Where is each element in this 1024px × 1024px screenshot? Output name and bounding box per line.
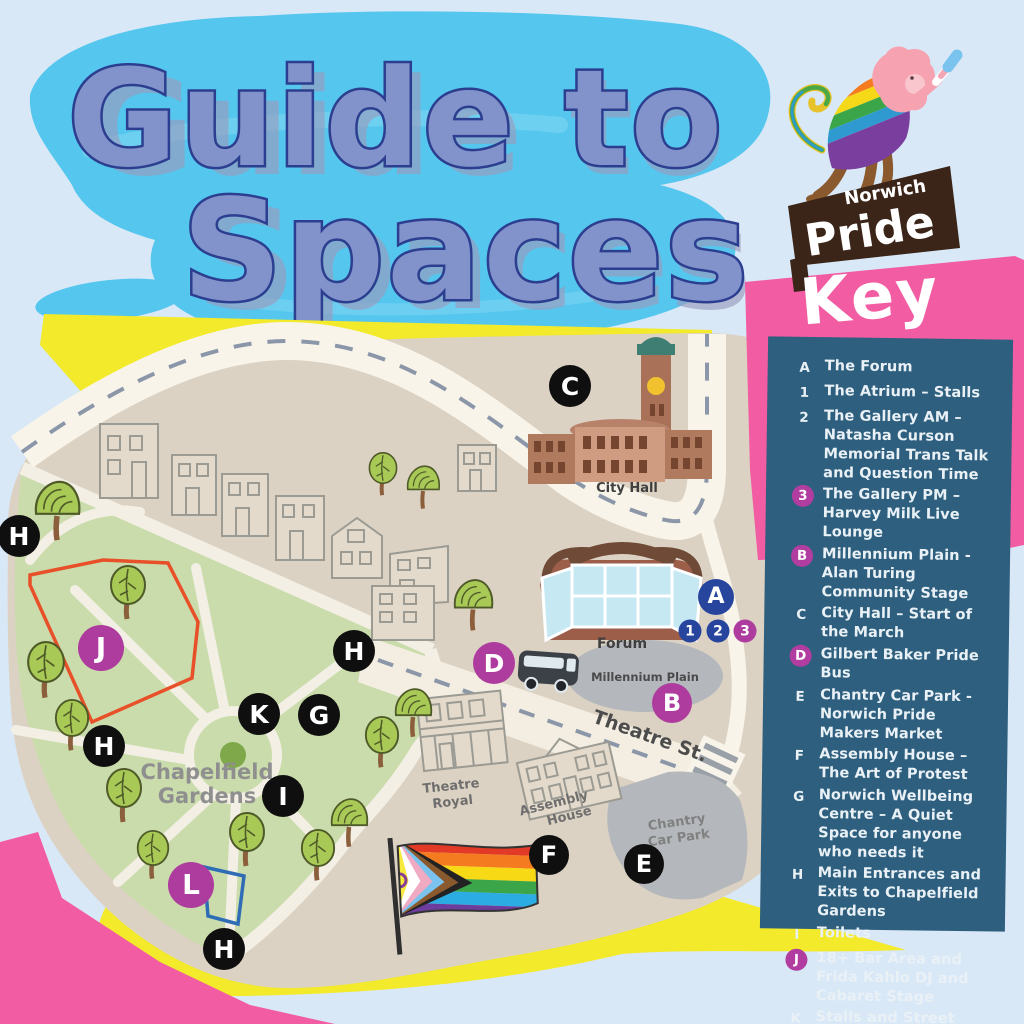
key-item-badge: J	[785, 949, 807, 971]
key-item: 2 The Gallery AM – Natasha Curson Memori…	[792, 407, 1002, 485]
key-item-badge: I	[786, 924, 808, 946]
key-item: 1 The Atrium – Stalls	[793, 382, 1002, 407]
key-item: K Stalls and Street Food	[784, 1008, 994, 1024]
key-item: C City Hall – Start of the March	[790, 604, 1000, 645]
key-item-text: Millennium Plain - Alan Turing Community…	[821, 545, 1000, 604]
label-city-hall: City Hall	[596, 481, 658, 496]
key-item-badge: 2	[793, 407, 815, 429]
title-line2: Spaces	[182, 170, 751, 333]
key-item: J 18+ Bar Area and Frida Kahlo DJ and Ca…	[785, 949, 995, 1008]
key-item: H Main Entrances and Exits to Chapelfiel…	[786, 864, 996, 923]
norwich-pride-logo: Norwich Pride	[770, 29, 960, 292]
key-item-badge: B	[791, 545, 813, 567]
key-item-text: Toilets	[817, 924, 871, 944]
key-item-text: Gilbert Baker Pride Bus	[820, 645, 999, 685]
key-item-text: Main Entrances and Exits to Chapelfield …	[817, 864, 996, 923]
key-item-badge: 1	[793, 382, 815, 404]
key-item-badge: E	[789, 685, 811, 707]
forum-building	[540, 548, 703, 640]
key-item-text: Norwich Wellbeing Centre – A Quiet Space…	[818, 786, 997, 864]
key-item-text: The Gallery PM – Harvey Milk Live Lounge	[822, 485, 1001, 544]
key-item-badge: F	[788, 745, 810, 767]
key-list: A The Forum 1 The Atrium – Stalls 2 The …	[784, 357, 1003, 1024]
key-item-badge: K	[784, 1008, 806, 1024]
key-item: A The Forum	[794, 357, 1003, 382]
key-item: I Toilets	[786, 924, 995, 949]
key-item-text: City Hall – Start of the March	[821, 605, 1000, 645]
key-item: E Chantry Car Park - Norwich Pride Maker…	[788, 685, 998, 744]
key-item-text: The Forum	[825, 357, 913, 377]
key-item: G Norwich Wellbeing Centre – A Quiet Spa…	[787, 786, 997, 864]
guide-to-spaces-poster: Guide to Guide to Spaces Spaces	[0, 0, 1024, 1024]
key-item-badge: 3	[792, 485, 814, 507]
key-item-text: 18+ Bar Area and Frida Kahlo DJ and Caba…	[816, 949, 995, 1008]
key-item-text: The Gallery AM – Natasha Curson Memorial…	[823, 407, 1002, 485]
label-forum: Forum	[597, 636, 647, 652]
key-item-badge: C	[790, 604, 812, 626]
label-chapelfield-1: Chapelfield	[140, 760, 273, 784]
key-item-badge: G	[788, 786, 810, 808]
key-item: D Gilbert Baker Pride Bus	[789, 645, 999, 686]
key-item: 3 The Gallery PM – Harvey Milk Live Loun…	[791, 485, 1001, 544]
key-item-text: The Atrium – Stalls	[824, 382, 980, 403]
key-item-badge: H	[786, 864, 808, 886]
key-item: B Millennium Plain - Alan Turing Communi…	[790, 545, 1000, 604]
key-item-text: Stalls and Street Food	[815, 1009, 994, 1024]
key-item-badge: D	[790, 645, 812, 667]
key-item-badge: A	[794, 357, 816, 379]
key-item-text: Chantry Car Park - Norwich Pride Makers …	[819, 686, 998, 745]
key-item: F Assembly House – The Art of Protest	[788, 745, 998, 786]
label-millennium-plain: Millennium Plain	[591, 670, 699, 684]
key-panel: A The Forum 1 The Atrium – Stalls 2 The …	[760, 336, 1013, 931]
key-item-text: Assembly House – The Art of Protest	[819, 745, 998, 785]
label-chapelfield-2: Gardens	[158, 784, 257, 808]
